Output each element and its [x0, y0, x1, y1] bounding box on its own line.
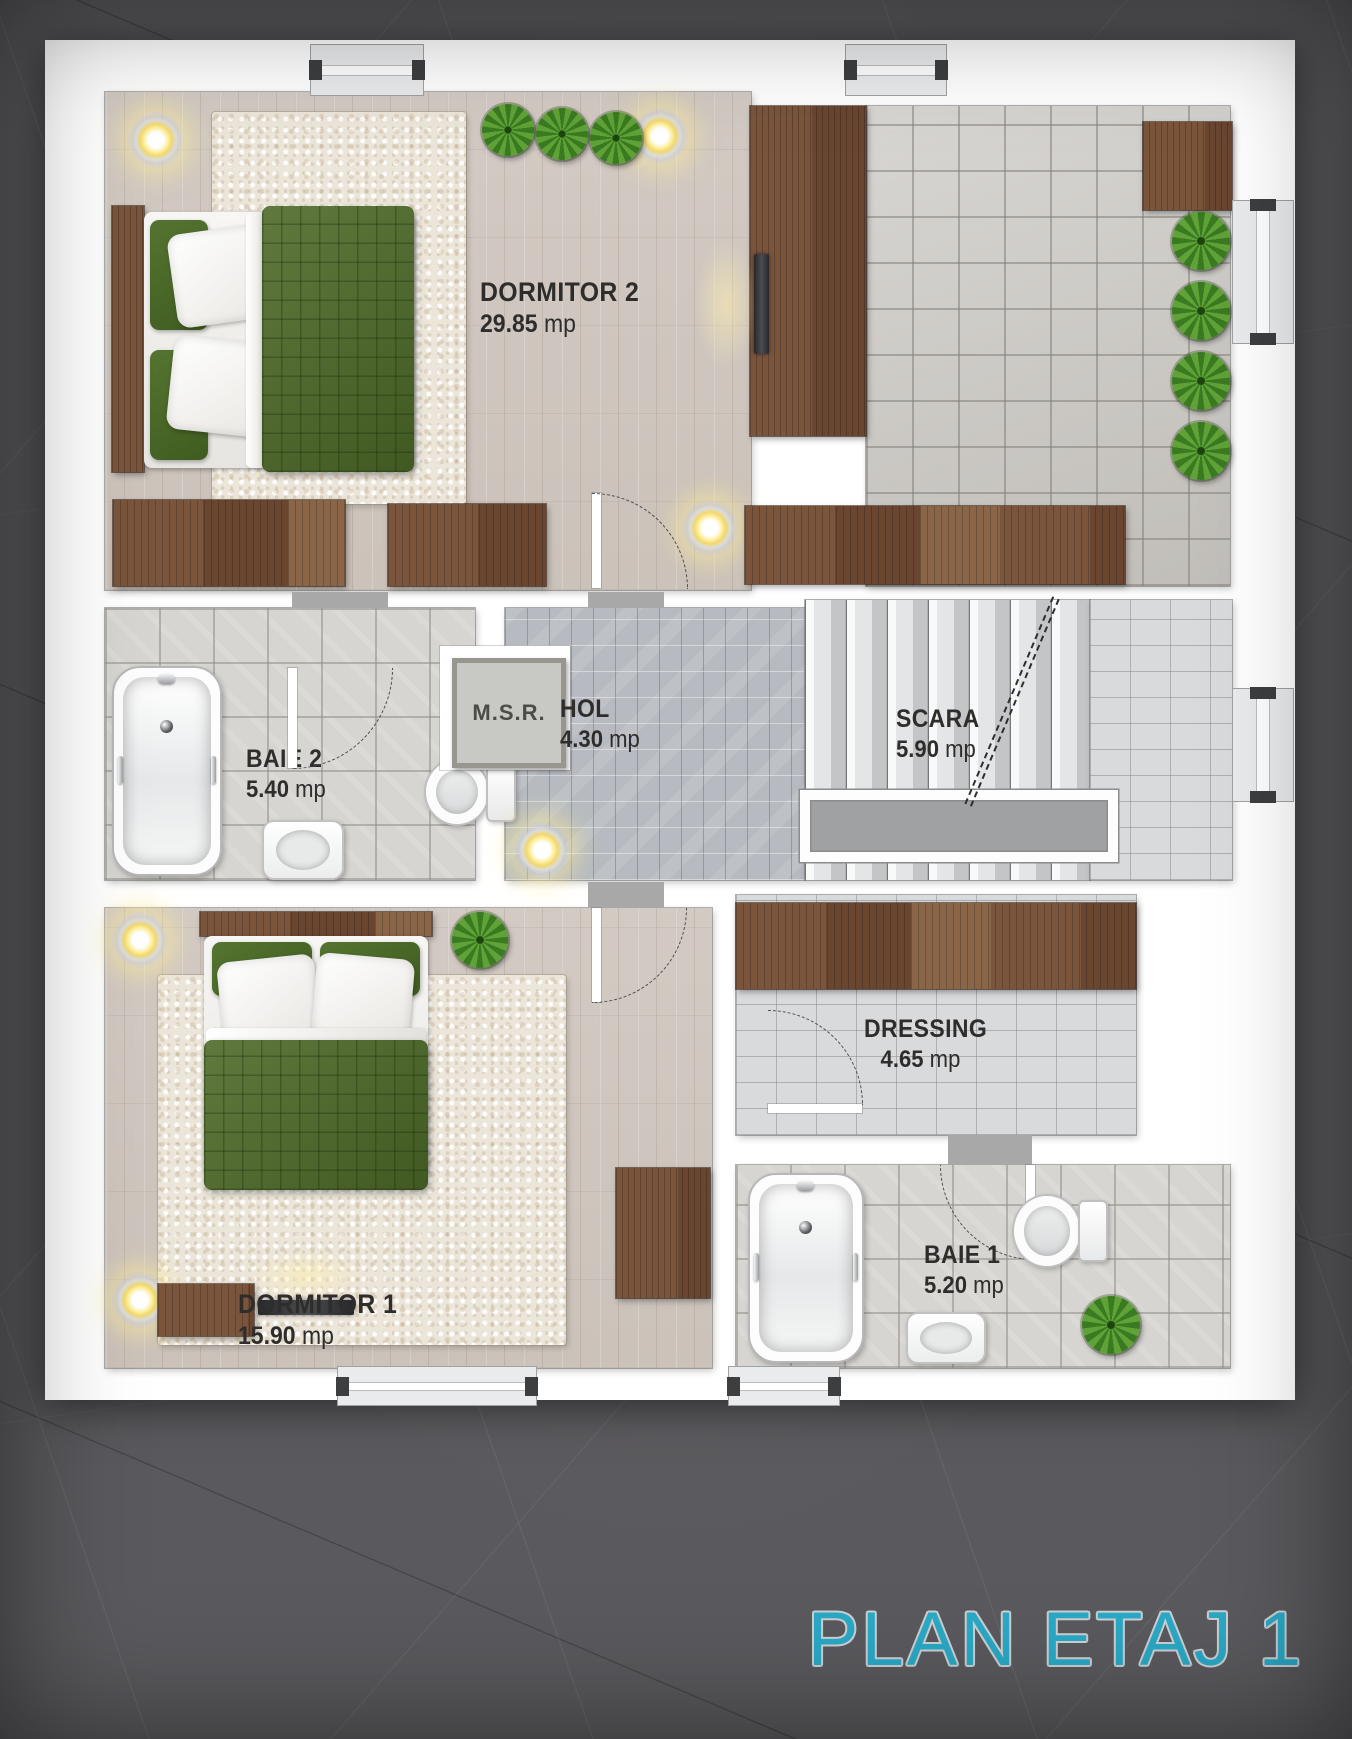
floor-plan-poster: DORMITOR 2 29.85 mp BAIE 2 5.40 mp M.S.R…: [0, 0, 1352, 1739]
background-vignette: [0, 0, 1352, 1739]
